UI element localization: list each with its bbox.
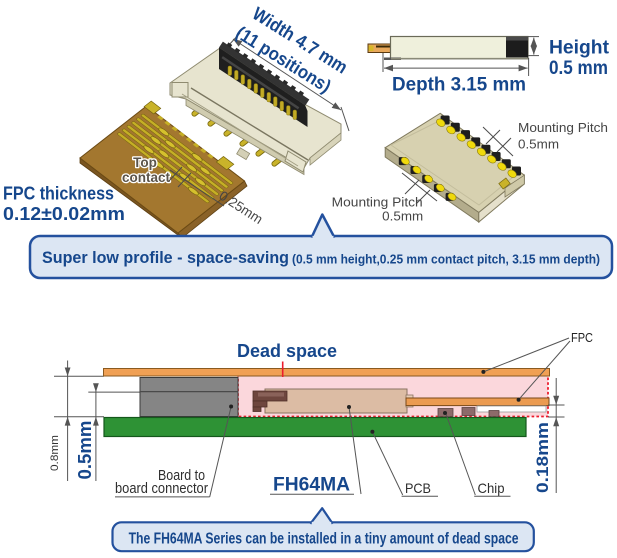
svg-text:FPC: FPC xyxy=(571,331,593,345)
svg-text:FH64MA: FH64MA xyxy=(273,474,350,496)
svg-text:Chip: Chip xyxy=(478,480,505,496)
svg-text:0.5mm: 0.5mm xyxy=(518,136,559,151)
svg-text:Dead space: Dead space xyxy=(237,340,337,361)
svg-text:Top: Top xyxy=(133,155,157,170)
svg-text:(0.5 mm height,0.25 mm contact: (0.5 mm height,0.25 mm contact pitch, 3.… xyxy=(292,251,600,266)
svg-text:contact: contact xyxy=(122,170,171,185)
svg-text:0.18mm: 0.18mm xyxy=(533,422,552,493)
svg-text:0.5mm: 0.5mm xyxy=(382,209,423,224)
svg-text:The FH64MA Series can be insta: The FH64MA Series can be installed in a … xyxy=(129,530,519,547)
svg-text:0.5mm: 0.5mm xyxy=(75,421,95,480)
svg-text:0.8mm: 0.8mm xyxy=(49,435,61,471)
svg-text:PCB: PCB xyxy=(405,480,431,496)
svg-text:Mounting Pitch: Mounting Pitch xyxy=(332,195,423,210)
svg-text:Depth 3.15 mm: Depth 3.15 mm xyxy=(392,75,526,96)
svg-text:Height: Height xyxy=(549,37,610,58)
svg-text:Mounting Pitch: Mounting Pitch xyxy=(518,120,608,135)
svg-text:0.5 mm: 0.5 mm xyxy=(549,58,608,79)
svg-text:FPC thickness: FPC thickness xyxy=(3,184,114,204)
svg-text:Super low profile - space-savi: Super low profile - space-saving xyxy=(42,248,289,267)
svg-text:board connector: board connector xyxy=(115,480,208,497)
svg-text:0.12±0.02mm: 0.12±0.02mm xyxy=(3,204,125,224)
